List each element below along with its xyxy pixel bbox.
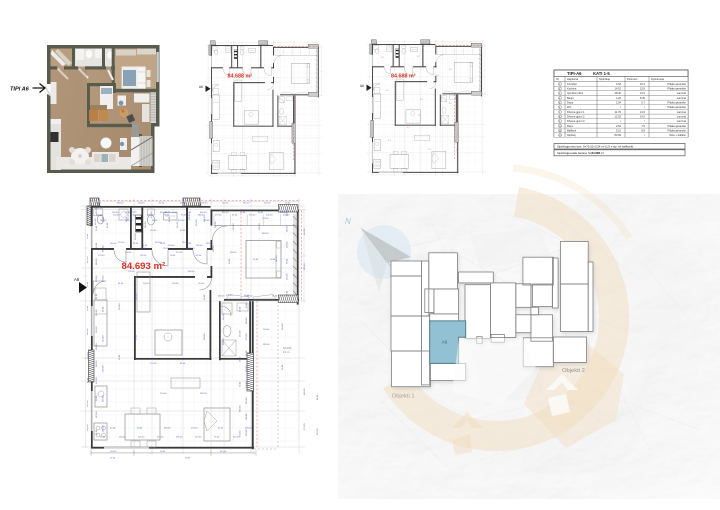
svg-text:Qendrimi ditor: Qendrimi ditor [567, 91, 583, 95]
svg-text:383.00: 383.00 [188, 271, 195, 273]
svg-text:16.00: 16.00 [285, 203, 291, 205]
svg-text:120.00: 120.00 [119, 303, 121, 310]
svg-text:170.50: 170.50 [96, 275, 98, 282]
svg-text:Pllaka qeramike: Pllaka qeramike [668, 101, 687, 105]
svg-text:105.00: 105.00 [172, 283, 179, 285]
svg-text:120.00: 120.00 [113, 215, 120, 217]
svg-text:16.00: 16.00 [87, 233, 89, 239]
svg-text:4.20: 4.20 [616, 96, 622, 100]
svg-text:25.00: 25.00 [107, 222, 109, 228]
svg-text:N: N [345, 217, 351, 226]
svg-text:16.00: 16.00 [119, 354, 121, 360]
svg-text:170.50: 170.50 [150, 363, 157, 365]
svg-text:90.00: 90.00 [240, 381, 242, 387]
svg-text:25.00: 25.00 [133, 243, 139, 245]
svg-text:415.00: 415.00 [130, 212, 137, 214]
svg-text:285.00: 285.00 [287, 225, 289, 232]
svg-text:294.00: 294.00 [304, 228, 306, 235]
svg-text:90.00: 90.00 [126, 216, 128, 222]
svg-text:2.04: 2.04 [616, 101, 622, 105]
svg-text:415.00: 415.00 [178, 220, 185, 222]
svg-text:61.00: 61.00 [232, 215, 238, 217]
svg-text:7.5: 7.5 [641, 124, 645, 128]
svg-text:Perimetri: Perimetri [627, 77, 638, 81]
svg-text:285.00: 285.00 [196, 245, 203, 247]
svg-text:10.4: 10.4 [640, 82, 646, 86]
svg-text:Pllaka qeramike: Pllaka qeramike [668, 105, 687, 109]
svg-text:16.00: 16.00 [282, 364, 284, 370]
svg-text:8.8: 8.8 [641, 129, 645, 133]
svg-text:383.00: 383.00 [304, 388, 306, 395]
svg-text:383.00: 383.00 [280, 212, 287, 214]
svg-text:Dyshemeja: Dyshemeja [651, 77, 665, 81]
svg-text:210.00: 210.00 [198, 283, 205, 285]
svg-text:285.00: 285.00 [276, 255, 278, 262]
svg-text:Hapësirat: Hapësirat [567, 77, 578, 81]
svg-text:Banjo: Banjo [567, 96, 574, 100]
svg-text:294.00: 294.00 [246, 365, 248, 372]
svg-text:25.00: 25.00 [165, 212, 171, 214]
svg-text:383.00: 383.00 [103, 245, 105, 252]
svg-text:90.00: 90.00 [186, 212, 192, 214]
svg-text:84.688 m²: 84.688 m² [228, 74, 253, 80]
svg-text:120.00: 120.00 [195, 437, 202, 439]
svg-text:170.50: 170.50 [151, 211, 153, 218]
svg-text:294.00: 294.00 [317, 428, 319, 435]
svg-text:84.688 m²: 84.688 m² [391, 74, 416, 80]
svg-text:105.00: 105.00 [266, 215, 273, 217]
svg-text:285.00: 285.00 [103, 425, 105, 432]
svg-text:Objekti 2: Objekti 2 [562, 368, 585, 374]
svg-text:415.00: 415.00 [240, 330, 242, 337]
svg-text:5.7: 5.7 [641, 101, 645, 105]
svg-text:Nr.: Nr. [556, 77, 560, 81]
svg-text:210.00: 210.00 [96, 343, 98, 350]
svg-text:25.00: 25.00 [87, 281, 89, 287]
svg-text:4.52: 4.52 [616, 82, 622, 86]
svg-text:61.00: 61.00 [159, 203, 165, 205]
svg-text:105.00: 105.00 [103, 365, 105, 372]
svg-text:25.00: 25.00 [110, 458, 116, 460]
svg-text:383.00: 383.00 [117, 203, 124, 205]
svg-text:294.00: 294.00 [87, 400, 89, 407]
svg-text:Dhoma gjumi 3: Dhoma gjumi 3 [567, 119, 585, 123]
svg-text:415.00: 415.00 [213, 245, 215, 252]
svg-text:Neto + ballkon: Neto + ballkon [669, 133, 686, 137]
svg-text:105.00: 105.00 [201, 203, 208, 205]
svg-text:120.00: 120.00 [150, 230, 157, 232]
svg-text:28.40: 28.40 [615, 91, 622, 95]
svg-text:415.00: 415.00 [95, 218, 97, 225]
svg-text:61.00: 61.00 [100, 437, 106, 439]
svg-text:285.00: 285.00 [246, 413, 248, 420]
svg-text:61.00: 61.00 [218, 428, 224, 430]
svg-text:90.00: 90.00 [96, 203, 102, 205]
svg-text:61.00: 61.00 [180, 363, 186, 365]
svg-text:105.00: 105.00 [223, 338, 225, 345]
svg-text:120.00: 120.00 [110, 451, 117, 453]
svg-text:25.00: 25.00 [164, 215, 170, 217]
svg-text:170.50: 170.50 [304, 423, 306, 430]
svg-text:210.00: 210.00 [263, 329, 270, 331]
svg-text:105.00: 105.00 [96, 326, 98, 333]
svg-text:105.00: 105.00 [168, 245, 175, 247]
svg-text:170.50: 170.50 [226, 295, 233, 297]
svg-text:120.00: 120.00 [140, 255, 147, 257]
svg-text:285.00: 285.00 [176, 437, 183, 439]
svg-text:Gjithsej: Gjithsej [567, 133, 576, 137]
svg-text:16.00: 16.00 [160, 451, 166, 453]
svg-text:383.00: 383.00 [164, 428, 171, 430]
svg-text:105.00: 105.00 [246, 381, 248, 388]
svg-text:415.00: 415.00 [87, 256, 89, 263]
svg-text:170.50: 170.50 [103, 275, 105, 282]
svg-text:90.00: 90.00 [181, 215, 187, 217]
svg-text:Sipërfaqja totale banëse S=84: Sipërfaqja totale banëse S=84.688 m² [557, 151, 604, 155]
svg-text:TIPI-A6: TIPI-A6 [567, 71, 582, 76]
svg-text:16.00: 16.00 [272, 296, 278, 298]
svg-text:8.40: 8.40 [640, 96, 646, 100]
svg-text:285.00: 285.00 [96, 360, 98, 367]
svg-text:170.50: 170.50 [98, 255, 105, 257]
svg-text:285.00: 285.00 [218, 296, 225, 298]
svg-text:Laminat: Laminat [677, 119, 687, 123]
svg-text:210.00: 210.00 [182, 242, 189, 244]
svg-text:170.50: 170.50 [262, 218, 269, 220]
svg-text:294.00: 294.00 [103, 335, 105, 342]
svg-text:84.69: 84.69 [615, 133, 622, 137]
svg-text:Korridori: Korridori [567, 82, 577, 86]
svg-text:294.00: 294.00 [180, 203, 187, 205]
svg-text:294.00: 294.00 [249, 215, 256, 217]
svg-text:16.00: 16.00 [287, 258, 289, 264]
svg-text:170.50: 170.50 [240, 430, 242, 437]
svg-text:61.00: 61.00 [246, 350, 248, 356]
svg-text:105.00: 105.00 [259, 223, 261, 230]
svg-text:120.00: 120.00 [112, 212, 119, 214]
svg-text:285.00: 285.00 [230, 252, 237, 254]
svg-text:15.8: 15.8 [640, 87, 646, 91]
svg-text:14.51: 14.51 [615, 87, 622, 91]
svg-text:120.00: 120.00 [246, 429, 248, 436]
svg-text:61.00: 61.00 [169, 216, 171, 222]
svg-text:25.00: 25.00 [240, 356, 242, 362]
svg-text:105.00: 105.00 [304, 263, 306, 270]
svg-text:25.00: 25.00 [110, 428, 116, 430]
svg-text:415.00: 415.00 [136, 293, 138, 300]
svg-text:Ballkoni: Ballkoni [567, 129, 577, 133]
svg-text:415.00: 415.00 [233, 437, 240, 439]
svg-text:90.00: 90.00 [229, 258, 231, 264]
svg-text:415.00: 415.00 [287, 273, 289, 280]
svg-text:383.00: 383.00 [206, 243, 213, 245]
svg-text:90.00: 90.00 [185, 458, 191, 460]
svg-text:61.00: 61.00 [196, 255, 202, 257]
svg-text:210.00: 210.00 [103, 395, 105, 402]
svg-text:Sipërfaqe: Sipërfaqe [599, 77, 611, 81]
svg-text:285.00: 285.00 [200, 393, 207, 395]
svg-text:383.00: 383.00 [145, 221, 147, 228]
svg-text:294.00: 294.00 [119, 437, 126, 439]
svg-text:210.00: 210.00 [287, 209, 289, 216]
svg-text:11.70: 11.70 [615, 110, 622, 114]
svg-text:294.00: 294.00 [177, 221, 179, 228]
svg-text:285.00: 285.00 [188, 248, 195, 250]
svg-text:Laminat: Laminat [677, 96, 687, 100]
svg-text:294.00: 294.00 [155, 242, 162, 244]
svg-text:A6: A6 [442, 340, 448, 345]
svg-text:16.00: 16.00 [240, 306, 242, 312]
svg-text:120.00: 120.00 [282, 323, 284, 330]
svg-text:61.00: 61.00 [103, 306, 105, 312]
svg-text:84.693 m²: 84.693 m² [122, 261, 166, 272]
svg-text:Laminat: Laminat [677, 115, 687, 119]
svg-text:415.00: 415.00 [96, 411, 98, 418]
svg-text:Pllaka qeramike: Pllaka qeramike [668, 87, 687, 91]
svg-text:16.00: 16.00 [180, 230, 186, 232]
svg-text:25.00: 25.00 [240, 212, 246, 214]
svg-text:2.54: 2.54 [616, 124, 622, 128]
svg-text:210.00: 210.00 [233, 223, 235, 230]
svg-text:90.00: 90.00 [246, 302, 248, 308]
svg-text:120.00: 120.00 [135, 233, 137, 240]
svg-text:21.9: 21.9 [640, 91, 646, 95]
svg-text:Pllaka qeramike: Pllaka qeramike [668, 82, 687, 86]
svg-text:383.00: 383.00 [96, 258, 98, 265]
svg-text:383.00: 383.00 [87, 328, 89, 335]
svg-text:210.00: 210.00 [160, 393, 167, 395]
svg-text:415.00: 415.00 [96, 207, 98, 214]
svg-text:5.10: 5.10 [616, 129, 622, 133]
svg-text:A6: A6 [360, 84, 364, 88]
svg-text:383.00: 383.00 [246, 317, 248, 324]
svg-text:A6: A6 [74, 277, 80, 282]
svg-text:90.00: 90.00 [258, 212, 264, 214]
svg-text:Objekti 1: Objekti 1 [392, 394, 415, 400]
svg-text:90.00: 90.00 [87, 305, 89, 311]
svg-text:WC: WC [567, 105, 571, 109]
svg-text:61.00: 61.00 [118, 283, 124, 285]
svg-text:25.00: 25.00 [136, 334, 138, 340]
svg-text:120.00: 120.00 [264, 203, 271, 205]
svg-text:13.6: 13.6 [640, 110, 646, 114]
svg-text:12.02: 12.02 [615, 115, 622, 119]
svg-text:61.00: 61.00 [96, 293, 98, 299]
svg-text:61.00: 61.00 [87, 377, 89, 383]
svg-text:90.00: 90.00 [96, 242, 98, 248]
svg-text:Kuzhina: Kuzhina [567, 87, 577, 91]
svg-text:2.1 m: 2.1 m [283, 350, 290, 354]
svg-text:TIPI A6: TIPI A6 [10, 87, 30, 93]
svg-text:285.00: 285.00 [263, 344, 270, 346]
svg-text:170.50: 170.50 [215, 215, 222, 217]
svg-text:105.00: 105.00 [125, 252, 132, 254]
svg-text:170.50: 170.50 [87, 352, 89, 359]
svg-text:105.00: 105.00 [87, 424, 89, 431]
svg-text:210.00: 210.00 [246, 397, 248, 404]
svg-text:Depo: Depo [567, 124, 574, 128]
svg-text:16.00: 16.00 [214, 437, 220, 439]
svg-text:90.00: 90.00 [137, 428, 143, 430]
svg-text:16.00: 16.00 [170, 255, 176, 257]
svg-text:25.00: 25.00 [96, 429, 98, 435]
svg-text:415.00: 415.00 [220, 451, 227, 453]
svg-text:210.00: 210.00 [157, 437, 164, 439]
svg-text:16.00: 16.00 [152, 220, 158, 222]
svg-text:Pllaka qeramike: Pllaka qeramike [668, 124, 687, 128]
svg-text:Laminat: Laminat [677, 110, 687, 114]
svg-text:120.00: 120.00 [87, 208, 89, 215]
svg-text:Sipërfaqja neto ban. S=75.02+2: Sipërfaqja neto ban. S=75.02+2.54 m² (1/… [557, 145, 633, 149]
svg-text:120.00: 120.00 [246, 296, 253, 298]
svg-text:294.00: 294.00 [143, 283, 150, 285]
svg-text:25.00: 25.00 [253, 259, 259, 261]
svg-text:285.00: 285.00 [204, 215, 206, 222]
svg-text:294.00: 294.00 [245, 428, 252, 430]
svg-text:90.00: 90.00 [204, 294, 206, 300]
svg-text:A6: A6 [199, 85, 203, 89]
svg-text:Dhoma gjumi 1: Dhoma gjumi 1 [567, 110, 585, 114]
svg-text:170.50: 170.50 [191, 428, 198, 430]
svg-text:170.50: 170.50 [138, 203, 145, 205]
svg-text:KATI 1-5: KATI 1-5 [593, 71, 610, 76]
svg-text:61.00: 61.00 [142, 245, 148, 247]
svg-text:415.00: 415.00 [110, 243, 117, 245]
svg-text:25.00: 25.00 [287, 290, 289, 296]
svg-text:Laminat: Laminat [677, 91, 687, 95]
svg-text:90.00: 90.00 [270, 259, 276, 261]
svg-text:285.00: 285.00 [243, 203, 250, 205]
svg-text:105.00: 105.00 [138, 437, 145, 439]
svg-text:210.00: 210.00 [196, 219, 198, 226]
svg-text:25.00: 25.00 [172, 212, 178, 214]
svg-text:210.00: 210.00 [163, 248, 170, 250]
svg-text:170.50: 170.50 [118, 242, 125, 244]
svg-text:383.00: 383.00 [262, 233, 269, 235]
svg-text:105.00: 105.00 [140, 248, 147, 250]
svg-text:120.00: 120.00 [96, 377, 98, 384]
svg-text:Depo: Depo [567, 101, 574, 105]
svg-text:294.00: 294.00 [223, 313, 225, 320]
svg-text:16.00: 16.00 [130, 215, 136, 217]
svg-text:14.0: 14.0 [640, 115, 646, 119]
svg-text:294.00: 294.00 [215, 221, 217, 228]
svg-text:120.00: 120.00 [287, 241, 289, 248]
svg-text:210.00: 210.00 [176, 252, 183, 254]
svg-text:383.00: 383.00 [240, 405, 242, 412]
svg-text:415.00: 415.00 [222, 212, 229, 214]
svg-text:Dhoma gjumi 2: Dhoma gjumi 2 [567, 115, 585, 119]
svg-text:S=3.00: S=3.00 [283, 346, 292, 350]
svg-text:Pllaka qeramike: Pllaka qeramike [668, 129, 687, 133]
svg-text:16.00: 16.00 [96, 395, 98, 401]
svg-text:383.00: 383.00 [204, 333, 206, 340]
svg-text:90.00: 90.00 [103, 216, 105, 222]
svg-text:170.50: 170.50 [246, 333, 248, 340]
svg-text:61.00: 61.00 [317, 394, 319, 400]
svg-text:383.00: 383.00 [200, 212, 207, 214]
svg-text:294.00: 294.00 [96, 309, 98, 316]
svg-text:210.00: 210.00 [222, 203, 229, 205]
